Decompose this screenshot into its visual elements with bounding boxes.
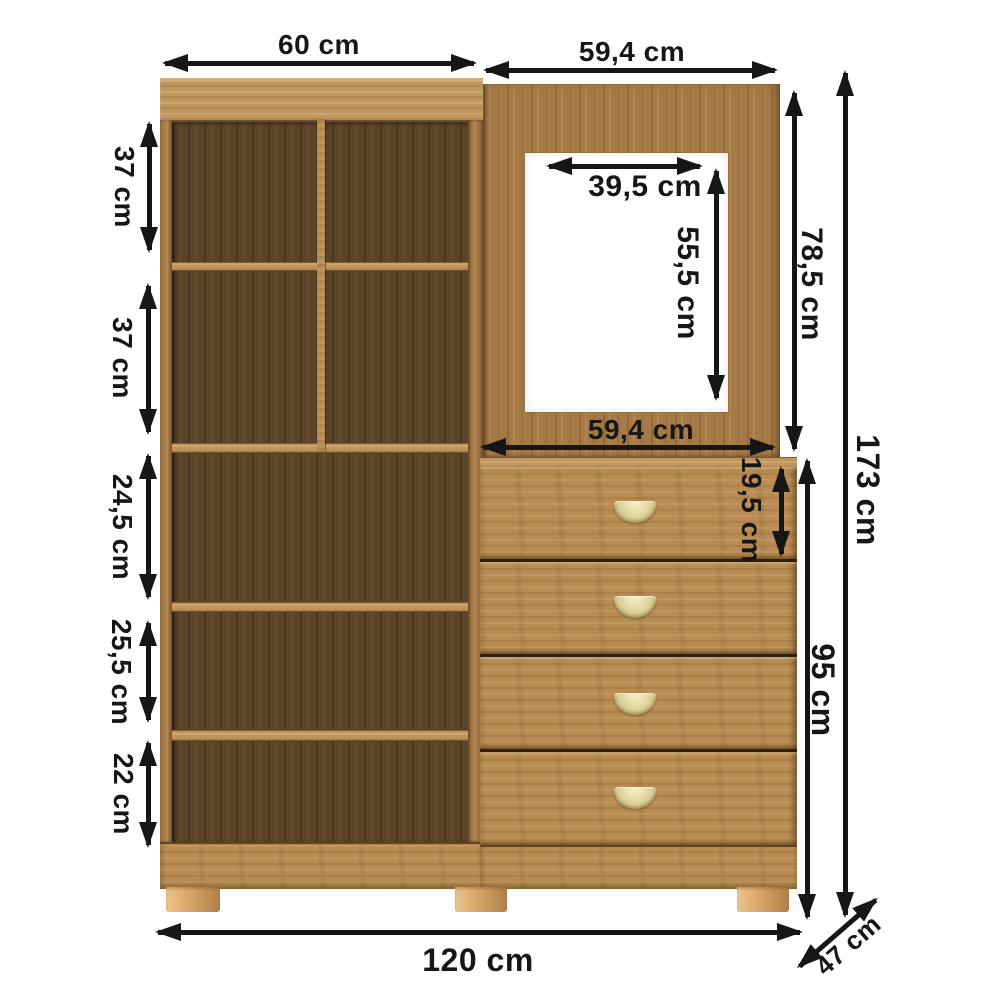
dim-top-right-width-label: 59,4 cm — [579, 38, 685, 66]
shelf-board-3 — [172, 602, 468, 612]
dim-shelf-row-2-label: 37 cm — [108, 317, 136, 399]
dim-shelf-width-label: 60 cm — [278, 31, 360, 59]
shelf-unit — [160, 78, 483, 887]
dim-total-width-label: 120 cm — [422, 944, 534, 976]
drawer-1-handle — [614, 501, 656, 523]
shelf-board-4 — [172, 730, 468, 741]
dim-top-drawer-height-label: 19,5 cm — [737, 457, 765, 563]
dim-mirror-width-label: 39,5 cm — [588, 172, 702, 202]
drawer-base — [480, 845, 797, 889]
furniture-diagram: 60 cm 59,4 cm 39,5 cm 55,5 cm 78,5 cm 59… — [0, 0, 1000, 1000]
dim-shelf-row-4-label: 25,5 cm — [107, 619, 135, 725]
dim-shelf-row-1-label: 37 cm — [110, 146, 138, 228]
dim-shelf-row-3-label: 24,5 cm — [108, 474, 136, 580]
shelf-left-wall — [160, 120, 172, 842]
shelf-top-board — [160, 78, 483, 122]
drawer-3 — [480, 657, 797, 749]
cabinet-foot-left — [166, 887, 220, 912]
drawer-2 — [480, 562, 797, 654]
shelf-base — [160, 842, 483, 889]
shelf-center-divider — [317, 120, 325, 451]
drawer-2-handle — [614, 596, 656, 618]
drawer-3-handle — [614, 693, 656, 715]
dim-drawer-section-width-label: 59,4 cm — [588, 416, 694, 444]
dim-panel-height-label: 78,5 cm — [796, 227, 826, 341]
dim-shelf-row-5-label: 22 cm — [109, 753, 137, 835]
mirror-panel — [483, 84, 780, 457]
dim-drawer-unit-height-label: 95 cm — [807, 643, 839, 736]
cabinet-foot-middle — [455, 887, 507, 912]
drawer-4 — [480, 752, 797, 845]
drawer-4-handle — [614, 787, 656, 809]
dim-mirror-height-label: 55,5 cm — [672, 226, 702, 340]
dim-total-height-label: 173 cm — [852, 434, 884, 546]
cabinet-foot-right — [737, 887, 789, 912]
